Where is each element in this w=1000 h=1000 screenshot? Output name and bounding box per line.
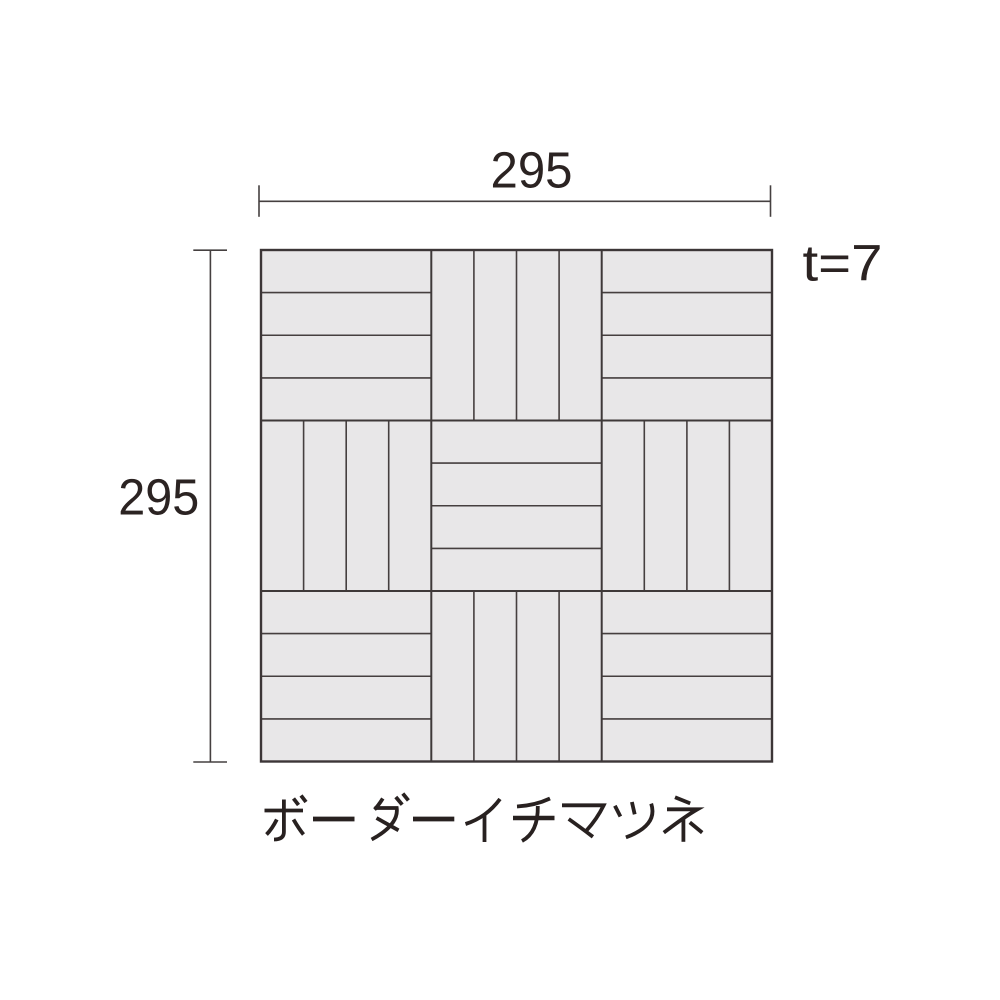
svg-text:295: 295 [118,469,199,526]
svg-text:295: 295 [491,142,573,199]
svg-text:t=7: t=7 [803,235,883,292]
